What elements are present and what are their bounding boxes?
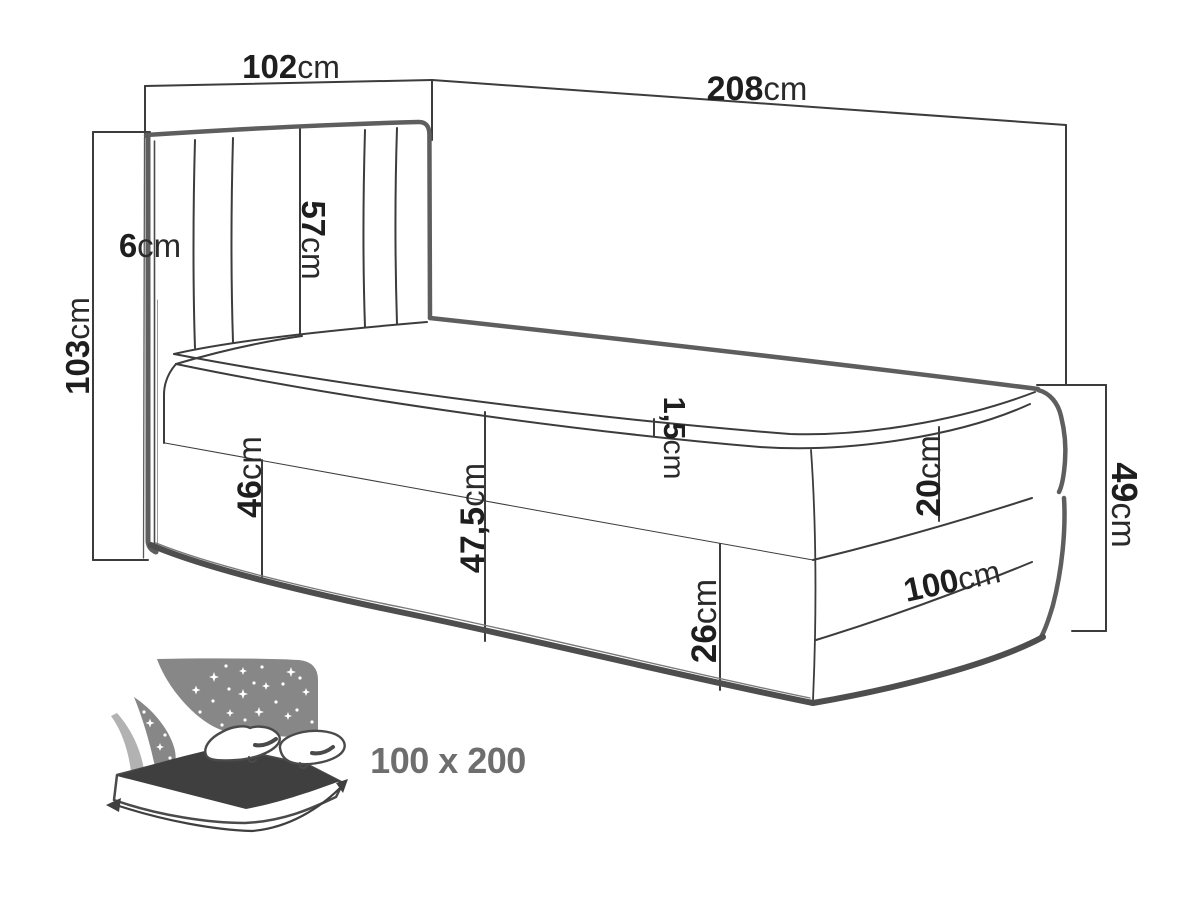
- svg-text:57cm: 57cm: [295, 200, 332, 279]
- svg-text:26cm: 26cm: [685, 579, 724, 663]
- svg-text:6cm: 6cm: [119, 227, 181, 264]
- svg-text:46cm: 46cm: [231, 436, 269, 518]
- svg-text:1,5cm: 1,5cm: [657, 396, 692, 479]
- svg-text:103cm: 103cm: [59, 297, 96, 395]
- svg-text:102cm: 102cm: [242, 48, 340, 85]
- svg-text:49cm: 49cm: [1104, 462, 1145, 547]
- svg-text:20cm: 20cm: [910, 435, 948, 517]
- svg-text:100 x 200: 100 x 200: [370, 740, 526, 781]
- svg-text:47,5cm: 47,5cm: [454, 463, 492, 573]
- svg-text:208cm: 208cm: [707, 70, 808, 108]
